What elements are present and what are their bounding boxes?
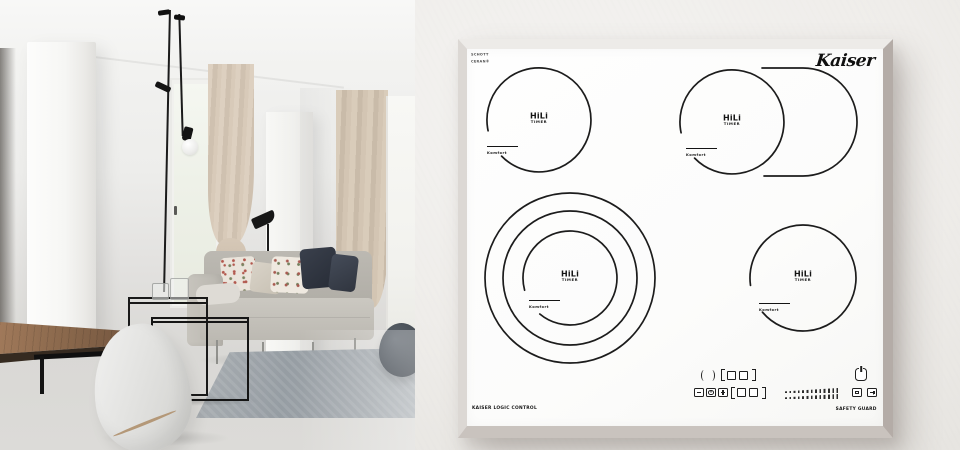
radiator-panel-left bbox=[27, 42, 96, 332]
power-level-slider-icon bbox=[785, 388, 838, 393]
window-right bbox=[386, 96, 415, 336]
chair-shell bbox=[85, 318, 198, 450]
product-banner: SCHOTT CERAN® Kaiser HiLiTIMERKomfortHiL… bbox=[0, 0, 960, 450]
timer-plus-key-icon bbox=[718, 388, 728, 397]
table-leg bbox=[40, 356, 44, 394]
zone-bracket-icon bbox=[752, 369, 756, 381]
product-section: SCHOTT CERAN® Kaiser HiLiTIMERKomfortHiL… bbox=[415, 0, 960, 450]
power-key-icon bbox=[855, 368, 867, 381]
pendant-bulb bbox=[182, 139, 198, 155]
hob-panel: SCHOTT CERAN® Kaiser HiLiTIMERKomfortHiL… bbox=[458, 39, 893, 438]
timer-minus-key-icon bbox=[694, 388, 704, 397]
zone-bracket-icon bbox=[721, 369, 725, 381]
hob-glass-surface: SCHOTT CERAN® Kaiser HiLiTIMERKomfortHiL… bbox=[467, 49, 883, 426]
zone-bracket-icon bbox=[762, 387, 766, 399]
curtain-left bbox=[208, 64, 254, 244]
zone-select-key-icon bbox=[727, 371, 736, 380]
touch-controls bbox=[467, 49, 883, 426]
glass-jar bbox=[170, 278, 189, 300]
timer-clock-key-icon bbox=[706, 388, 716, 397]
zone-select-key-icon bbox=[737, 388, 746, 397]
logic-control-label: KAISER LOGIC CONTROL bbox=[472, 395, 590, 414]
pendant-canopy bbox=[174, 14, 185, 20]
living-room-photo bbox=[0, 0, 415, 450]
safety-guard-label: SAFETY GUARD bbox=[802, 396, 877, 415]
glass-jar bbox=[152, 283, 169, 300]
floor-light-wash bbox=[298, 330, 415, 450]
wall-shadow-edge bbox=[0, 48, 16, 343]
residual-heat-bracket-icon bbox=[701, 370, 706, 381]
window-handle bbox=[174, 206, 177, 215]
zone-select-key-icon bbox=[739, 371, 748, 380]
residual-heat-bracket-icon bbox=[710, 370, 715, 381]
zone-select-key-icon bbox=[749, 388, 758, 397]
zone-bracket-icon bbox=[731, 387, 735, 399]
shell-chair bbox=[77, 317, 206, 450]
pillow-navy bbox=[328, 253, 359, 292]
